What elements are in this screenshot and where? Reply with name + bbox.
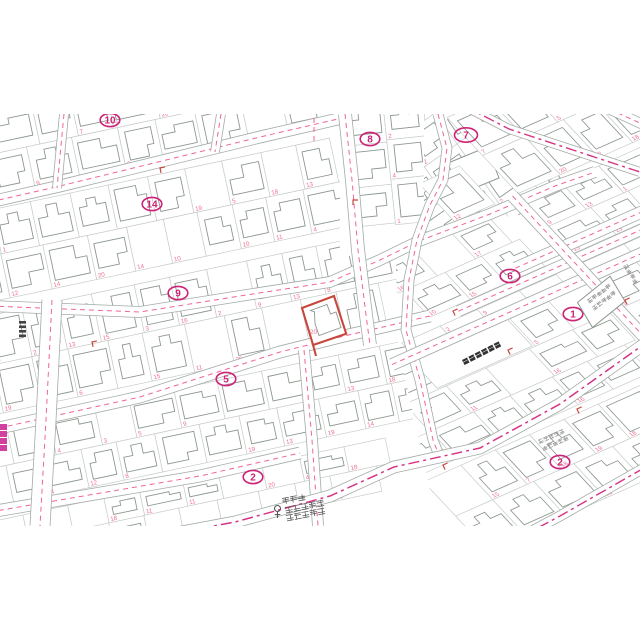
- svg-text:9: 9: [175, 289, 181, 300]
- svg-text:7: 7: [463, 131, 469, 142]
- svg-text:10: 10: [104, 116, 116, 127]
- svg-text:5: 5: [223, 375, 229, 386]
- svg-text:2: 2: [557, 458, 563, 469]
- svg-text:8: 8: [367, 135, 373, 146]
- svg-text:20: 20: [310, 329, 317, 336]
- svg-text:6: 6: [507, 272, 513, 283]
- svg-text:14: 14: [146, 200, 158, 211]
- svg-text:2: 2: [250, 473, 256, 484]
- svg-text:1: 1: [570, 310, 576, 321]
